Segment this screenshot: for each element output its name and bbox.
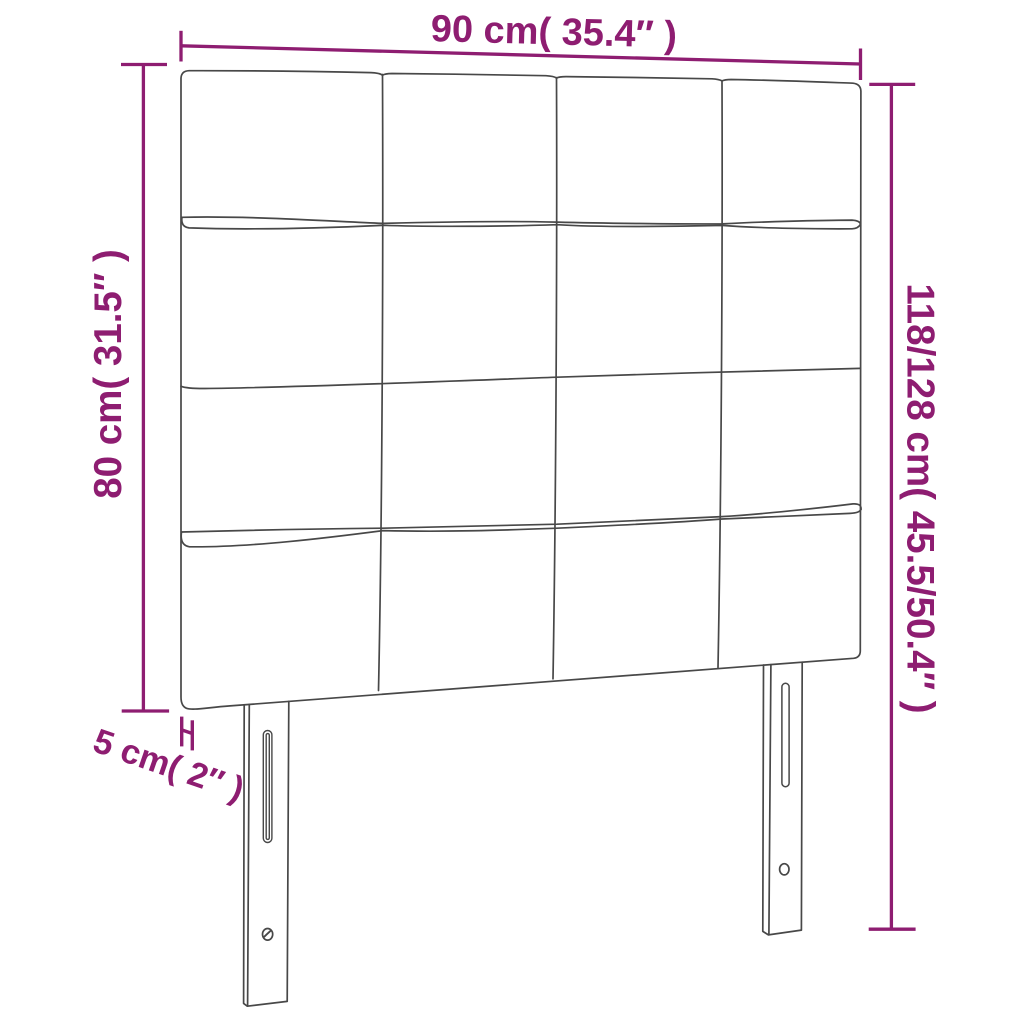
- svg-text:118/128 cm( 45.5/50.4″ ): 118/128 cm( 45.5/50.4″ ): [899, 283, 942, 713]
- svg-text:90 cm( 35.4″ ): 90 cm( 35.4″ ): [430, 8, 677, 56]
- svg-text:80 cm( 31.5″ ): 80 cm( 31.5″ ): [87, 249, 130, 499]
